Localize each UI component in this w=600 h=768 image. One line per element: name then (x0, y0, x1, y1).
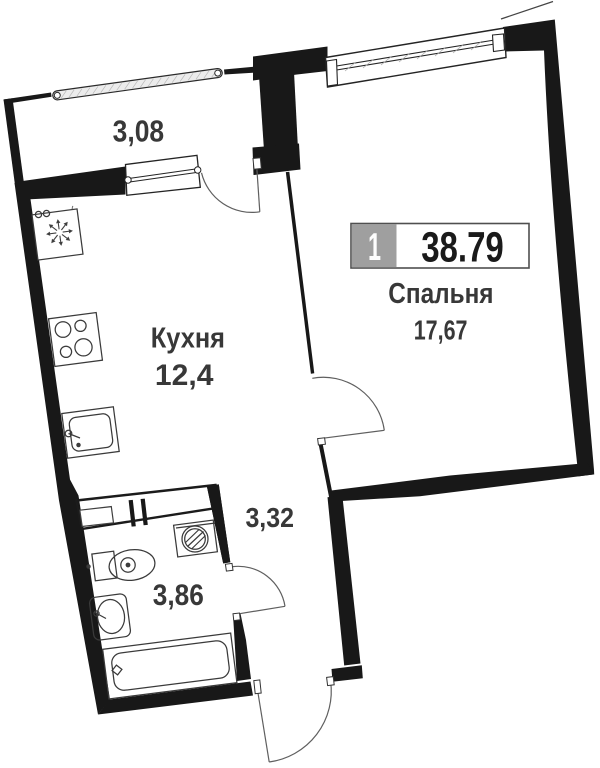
svg-text:38.79: 38.79 (421, 224, 504, 272)
svg-text:Спальня: Спальня (388, 278, 493, 310)
svg-text:1: 1 (368, 226, 381, 269)
svg-text:3,86: 3,86 (153, 579, 204, 612)
svg-text:12,4: 12,4 (155, 359, 214, 392)
svg-text:Кухня: Кухня (151, 323, 225, 355)
svg-text:3,08: 3,08 (113, 113, 165, 148)
svg-text:17,67: 17,67 (414, 314, 468, 345)
svg-text:3,32: 3,32 (245, 502, 294, 533)
